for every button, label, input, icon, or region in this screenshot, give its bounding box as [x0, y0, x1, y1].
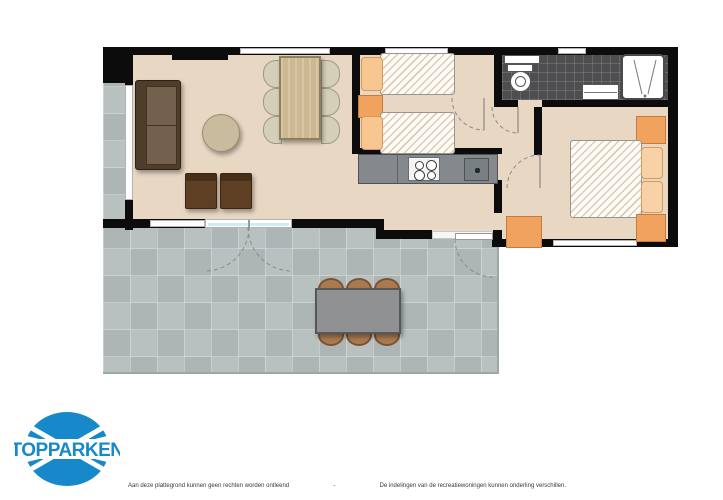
entry-door-swing	[455, 239, 493, 277]
french-door-swing-left	[205, 227, 249, 271]
shower-drain	[644, 95, 647, 98]
disclaimer-left: Aan deze plattegrond kunnen geen rechten…	[128, 483, 289, 489]
logo-text: TOPPARKEN	[14, 440, 120, 461]
topparken-logo: TOPPARKEN	[14, 410, 120, 488]
bathroom-door-swing	[492, 107, 518, 133]
disclaimer-right: De indelingen van de recreatiewoningen k…	[380, 483, 566, 489]
french-door-swing-right	[248, 227, 292, 271]
shower-door-lines	[634, 60, 656, 94]
master-door-swing	[507, 155, 540, 188]
disclaimer-separator: -	[333, 483, 335, 489]
floorplan-canvas: TOPPARKEN Aan deze plattegrond kunnen ge…	[0, 0, 723, 500]
bedroom2-door-swing	[452, 98, 484, 130]
footer-disclaimer: Aan deze plattegrond kunnen geen rechten…	[128, 483, 566, 489]
